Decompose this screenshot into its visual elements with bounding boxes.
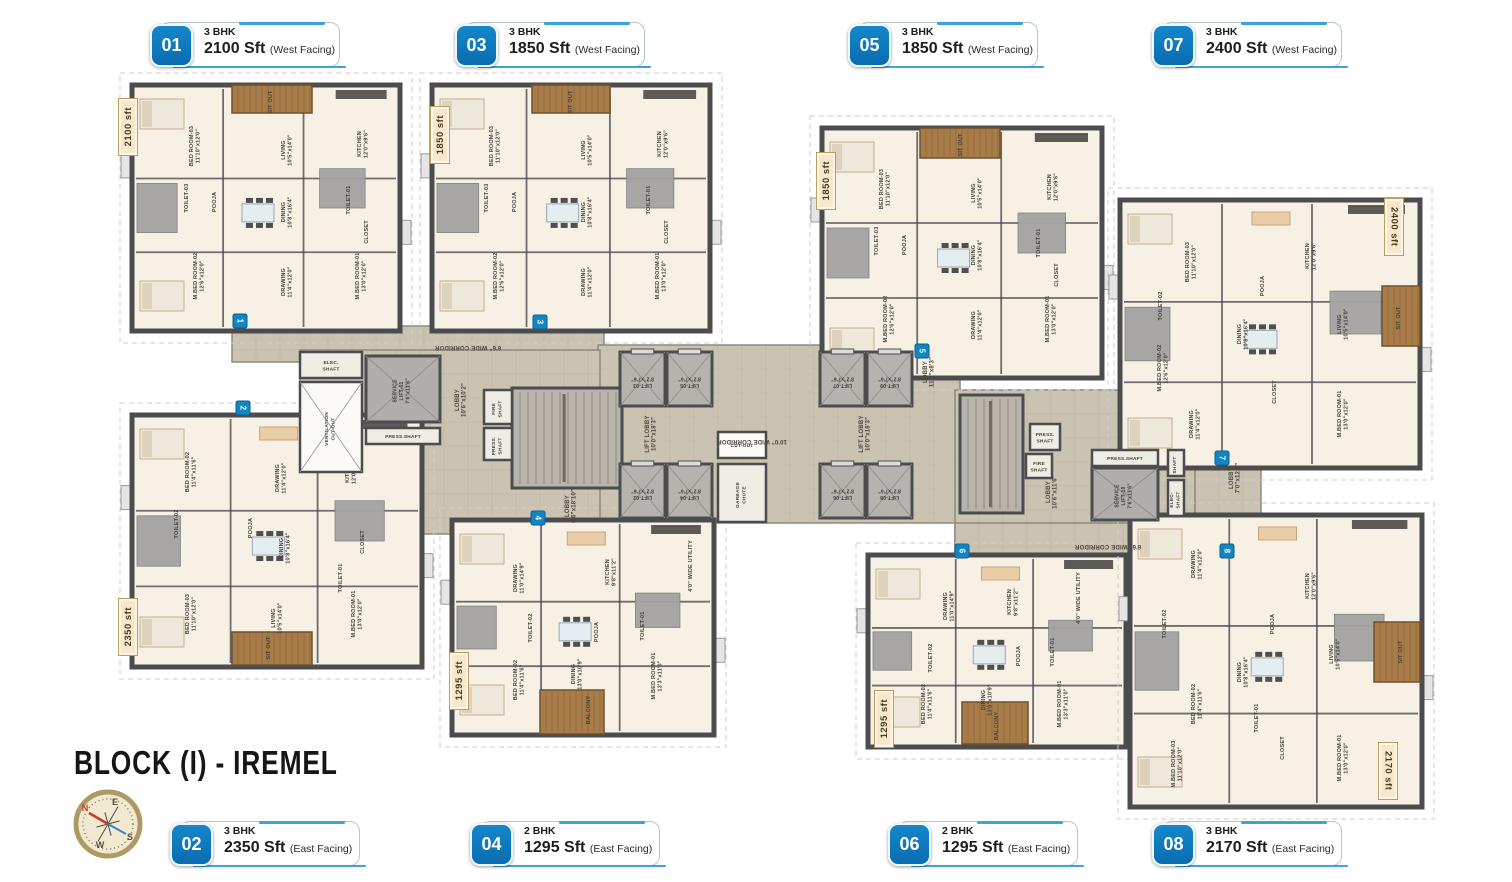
shaft-label: PRESS.SHAFT (385, 434, 421, 440)
bhk-label: 3 BHK (1206, 27, 1337, 39)
room-label: TOILET-02 (928, 644, 934, 673)
area-label: 2170 Sft (East Facing) (1206, 839, 1334, 857)
block-title: BLOCK (I) - IREMEL (74, 744, 338, 782)
service-lift-label: SERVICELIFT-017'6"x11'6" (393, 378, 412, 404)
bhk-label: 2 BHK (524, 826, 652, 838)
room-label: BED ROOM-0311'10"x12'0" (185, 594, 198, 634)
corridor-label: LIFT LOBBY10'0"x18'3" (645, 415, 658, 452)
room-label: TOILET-01 (640, 612, 646, 641)
area-tag: 2170 sft (1378, 742, 1398, 800)
room-label: SIT OUT (568, 90, 574, 114)
unit-number-badge: 02 (170, 823, 213, 866)
facing-label: (West Facing) (968, 44, 1033, 56)
accent-line-bottom (1175, 66, 1348, 69)
accent-line-bottom (478, 66, 651, 69)
lift-lift-04: LIFT-048'2"x7'6" (667, 461, 712, 518)
dining-table (547, 204, 579, 222)
room-label: POOJA (594, 622, 600, 642)
room-label: POOJA (1270, 614, 1276, 634)
room-label: CLOSET (364, 220, 370, 244)
bathroom-tile (873, 632, 912, 670)
marker-number: 6 (957, 549, 966, 554)
unit-01-callout: 013 BHK2100 Sft (West Facing) (150, 21, 340, 67)
unit-number-badge: 06 (888, 823, 931, 866)
bhk-label: 3 BHK (509, 27, 640, 39)
bathroom-tile (457, 606, 496, 649)
unit-03-apartment: SIT OUTBED ROOM-0311'10"x12'0"LIVING10'5… (420, 73, 722, 343)
area-tag: 1850 sft (816, 152, 836, 210)
shaft: FIRESHAFT (1026, 454, 1052, 478)
area-label: 2350 Sft (East Facing) (224, 839, 352, 857)
room-label: TOILET-01 (646, 186, 652, 215)
room-label: TOILET-02 (1158, 292, 1164, 321)
facing-label: (West Facing) (575, 44, 640, 56)
area-label: 1850 Sft (West Facing) (509, 40, 640, 58)
unit-04-callout: 042 BHK1295 Sft (East Facing) (470, 820, 660, 866)
unit-entry-marker-8: 8 (1220, 544, 1234, 558)
shaft-label: PRESS.SHAFT (1107, 456, 1143, 462)
shaft: GARBAGECHUTE (718, 464, 766, 522)
room-label: BED ROOM-0311'10"x12'0" (879, 169, 892, 209)
shaft: PRESS.SHAFT (366, 428, 440, 444)
room-label: TOILET-03 (484, 184, 490, 213)
room-label: BED ROOM-0211'4"x11'6" (185, 452, 198, 492)
room-label: BALCONY (994, 712, 1000, 741)
compass-letter: E (112, 797, 118, 807)
kitchen-counter (1352, 520, 1407, 529)
unit-08-callout: 083 BHK2170 Sft (East Facing) (1152, 820, 1342, 866)
lift-label: LIFT-098'2"x7'6" (878, 376, 901, 389)
sofa (1252, 212, 1290, 225)
facing-label: (East Facing) (290, 843, 352, 855)
shaft: FIRESHAFT (484, 390, 512, 424)
unit-07-callout: 073 BHK2400 Sft (West Facing) (1152, 21, 1342, 67)
shaft: CUT-OUT (718, 432, 766, 458)
shaft: ELEC.SHAFT (300, 352, 362, 378)
accent-line-top (559, 821, 644, 824)
room-label: TOILET-01 (346, 186, 352, 215)
sofa (982, 567, 1020, 580)
room-label: KITCHEN12'0"x9'6" (357, 130, 370, 158)
lift-label: LIFT-068'2"x7'6" (831, 488, 854, 501)
kitchen-counter (1035, 133, 1088, 142)
room-label: POOJA (212, 192, 218, 212)
area-tag: 1295 sft (874, 690, 894, 748)
balcony-deck (540, 690, 604, 734)
bathroom-tile (137, 183, 177, 232)
staircase (960, 395, 1023, 513)
accent-line-top (937, 22, 1022, 25)
shaft: VENTILATIONCUT-OUT (300, 382, 362, 472)
lift-lift-08: LIFT-088'2"x7'6" (867, 461, 912, 518)
lift-label: LIFT-048'2"x7'6" (678, 488, 701, 501)
corridor-label: LIFT LOBBY10'0"x18'3" (859, 415, 872, 452)
facing-label: (East Facing) (1008, 843, 1070, 855)
lift-label: LIFT-078'2"x7'6" (831, 376, 854, 389)
accent-line-top (1241, 821, 1326, 824)
marker-number: 3 (535, 320, 544, 325)
unit-03-callout: 033 BHK1850 Sft (West Facing) (455, 21, 645, 67)
area-label: 1850 Sft (West Facing) (902, 40, 1033, 58)
marker-number: 5 (917, 349, 926, 354)
unit-entry-marker-7: 7 (1215, 451, 1229, 465)
accent-line-top (239, 22, 324, 25)
room-label: TOILET-01 (338, 564, 344, 593)
lift-label: LIFT-028'2"x7'6" (631, 488, 654, 501)
unit-06-apartment: DRAWING11'0"x14'9"KITCHEN9'8"x11'2"4'0" … (856, 543, 1138, 759)
bhk-label: 3 BHK (902, 27, 1033, 39)
shaft: PRESS.SHAFT (1030, 424, 1060, 450)
unit-entry-marker-5: 5 (915, 344, 929, 358)
unit-entry-marker-4: 4 (531, 511, 545, 525)
corridor-label: LOBBY11'2"x8'3" (923, 357, 936, 387)
unit-entry-marker-6: 6 (955, 544, 969, 558)
unit-number-badge: 04 (470, 823, 513, 866)
marker-number: 4 (533, 516, 542, 521)
area-tag: 2400 sft (1384, 198, 1404, 256)
room-label: POOJA (248, 518, 254, 538)
shaft: PRESS.SHAFT (484, 428, 512, 460)
dining-table (242, 204, 274, 222)
room-label: BED ROOM-0311'10"x12'0" (189, 126, 202, 166)
bathroom-tile (827, 228, 869, 278)
unit-number-badge: 08 (1152, 823, 1195, 866)
room-label: DRAWING11'4"x12'0" (971, 309, 984, 340)
accent-line-bottom (871, 66, 1044, 69)
kitchen-counter (1064, 560, 1113, 569)
compass-letter: S (127, 832, 133, 842)
room-label: TOILET-02 (1162, 610, 1168, 639)
facing-label: (West Facing) (270, 44, 335, 56)
dining-table (938, 249, 970, 267)
room-label: DRAWING11'4"x12'0" (1191, 548, 1204, 579)
accent-line-top (1241, 22, 1326, 25)
lift-lift-07: LIFT-078'2"x7'6" (820, 349, 865, 406)
marker-number: 8 (1222, 549, 1231, 554)
unit-02-callout: 023 BHK2350 Sft (East Facing) (170, 820, 360, 866)
compass-letter: N (82, 803, 89, 813)
dining-table (973, 646, 1005, 664)
room-label: CLOSET (1054, 263, 1060, 287)
room-label: TOILET-01 (1050, 638, 1056, 667)
room-label: DRAWING11'0"x14'9" (513, 562, 526, 593)
room-label: POOJA (1016, 646, 1022, 666)
floor-plan-page: { "title": "BLOCK (I) - IREMEL", "compas… (0, 0, 1512, 882)
dining-table (1251, 658, 1283, 676)
room-label: TOILET-01 (1254, 704, 1260, 733)
shaft-label: SHAFT (1172, 457, 1178, 474)
service-lift: SERVICELIFT-017'6"x11'6" (366, 356, 440, 422)
sofa (260, 427, 298, 440)
room-label: KITCHEN12'0"x9'6" (1047, 173, 1060, 201)
unit-number-badge: 01 (150, 24, 193, 67)
facing-label: (East Facing) (1272, 843, 1334, 855)
room-label: 4'0" WIDE UTILITY (688, 540, 694, 592)
room-label: CLOSET (664, 220, 670, 244)
room-label: DRAWING11'4"x12'0" (281, 266, 294, 297)
sofa (1258, 527, 1296, 540)
area-tag: 1850 sft (430, 106, 450, 164)
room-label: BED ROOM-0311'10"x12'0" (1185, 242, 1198, 282)
unit-05-callout: 053 BHK1850 Sft (West Facing) (848, 21, 1038, 67)
unit-06-callout: 062 BHK1295 Sft (East Facing) (888, 820, 1078, 866)
compass-icon: NESW (72, 788, 144, 860)
bhk-label: 3 BHK (204, 27, 335, 39)
accent-line-bottom (173, 66, 346, 69)
lift-lift-03: LIFT-038'2"x7'6" (620, 349, 665, 406)
room-label: TOILET-03 (874, 227, 880, 256)
room-label: TOILET-01 (1036, 229, 1042, 258)
unit-04-apartment: DRAWING11'0"x14'9"KITCHEN9'8"x11'2"4'0" … (440, 508, 726, 747)
marker-number: 7 (1217, 456, 1226, 461)
marker-number: 2 (238, 406, 247, 411)
shaft: ELEC-SHAFT (1168, 480, 1184, 516)
corridor-label: LOBBY7'0"x12'9" (1229, 463, 1242, 494)
area-tag: 2350 sft (118, 598, 138, 656)
room-label: KITCHEN9'8"x11'2" (605, 558, 618, 586)
accent-line-top (977, 821, 1062, 824)
unit-entry-marker-3: 3 (533, 315, 547, 329)
room-label: CLOSET (360, 530, 366, 554)
room-label: DRAWING11'0"x14'9" (943, 590, 956, 621)
accent-line-bottom (1175, 865, 1348, 868)
room-label: SIT OUT (1398, 640, 1404, 664)
room-label: CLOSET (1280, 736, 1286, 760)
room-label: KITCHEN9'8"x11'2" (1007, 588, 1020, 616)
lift-lift-05: LIFT-058'2"x7'6" (667, 349, 712, 406)
kitchen-counter (336, 90, 387, 99)
accent-line-bottom (493, 865, 666, 868)
lift-label: LIFT-058'2"x7'6" (678, 376, 701, 389)
room-label: POOJA (1260, 276, 1266, 296)
unit-number-badge: 05 (848, 24, 891, 67)
marker-number: 1 (235, 319, 244, 324)
kitchen-counter (651, 525, 701, 534)
area-label: 1295 Sft (East Facing) (942, 839, 1070, 857)
service-lift: SERVICELIFT-107'6"x11'6" (1092, 468, 1158, 520)
compass-letter: W (96, 840, 105, 850)
kitchen-counter (643, 90, 696, 99)
lift-label: LIFT-038'2"x7'6" (631, 376, 654, 389)
room-label: DRAWING11'4"x12'0" (581, 266, 594, 297)
room-label: M.BED ROOM-0311'10"x12'0" (1171, 741, 1184, 788)
unit-entry-marker-1: 1 (233, 314, 247, 328)
room-label: CLOSET (1272, 380, 1278, 404)
room-label: SIT OUT (268, 90, 274, 114)
area-label: 2400 Sft (West Facing) (1206, 40, 1337, 58)
room-label: SIT OUT (958, 133, 964, 157)
unit-entry-marker-2: 2 (236, 401, 250, 415)
accent-line-bottom (193, 865, 366, 868)
lift-lift-06: LIFT-068'2"x7'6" (820, 461, 865, 518)
balcony-deck (1374, 622, 1420, 682)
room-label: BED ROOM-0211'4"x11'6" (921, 684, 934, 724)
room-label: BED ROOM-0311'10"x12'0" (489, 126, 502, 166)
bathroom-tile (320, 169, 366, 208)
bathroom-tile (1135, 632, 1179, 690)
unit-05-apartment: SIT OUTBED ROOM-0311'10"x12'0"LIVING10'5… (810, 116, 1114, 390)
room-label: POOJA (902, 235, 908, 255)
accent-line-bottom (911, 865, 1084, 868)
room-label: 4'0" WIDE UTILITY (1076, 572, 1082, 624)
room-label: BED ROOM-0211'4"x11'6" (1191, 684, 1204, 724)
corridor-label: 6'6" WIDE CORRIDOR (1074, 543, 1141, 549)
area-tag: 1295 sft (449, 652, 469, 710)
corridor-label: 6'6" WIDE CORRIDOR (434, 344, 501, 350)
area-label: 1295 Sft (East Facing) (524, 839, 652, 857)
facing-label: (West Facing) (1272, 44, 1337, 56)
room-label: SIT OUT (1396, 306, 1402, 330)
room-label: BALCONY (586, 696, 592, 725)
unit-number-badge: 03 (455, 24, 498, 67)
room-label: TOILET-02 (174, 510, 180, 539)
dining-table (559, 623, 591, 641)
room-label: DRAWING11'4"x12'0" (1189, 408, 1202, 439)
area-label: 2100 Sft (West Facing) (204, 40, 335, 58)
accent-line-top (544, 22, 629, 25)
room-label: KITCHEN12'0"x9'6" (1305, 572, 1318, 600)
room-label: TOILET-02 (528, 614, 534, 643)
unit-01-apartment: SIT OUTBED ROOM-0311'10"x12'0"LIVING10'5… (120, 73, 412, 343)
bhk-label: 3 BHK (224, 826, 352, 838)
corridor-label: 10'0" WIDE CORRIDOR (717, 438, 787, 444)
staircase (512, 388, 622, 488)
bathroom-tile (437, 183, 479, 232)
unit-number-badge: 07 (1152, 24, 1195, 67)
room-label: POOJA (512, 192, 518, 212)
room-label: SIT OUT (266, 636, 272, 660)
shaft: SHAFT (1168, 450, 1184, 476)
lift-lift-02: LIFT-028'2"x7'6" (620, 461, 665, 518)
shaft: PRESS.SHAFT (1092, 450, 1158, 466)
area-tag: 2100 sft (118, 98, 138, 156)
room-label: DRAWING11'4"x12'0" (275, 462, 288, 493)
bhk-label: 2 BHK (942, 826, 1070, 838)
room-label: TOILET-03 (184, 184, 190, 213)
lift-label: LIFT-088'2"x7'6" (878, 488, 901, 501)
sofa (567, 532, 605, 545)
service-lift-label: SERVICELIFT-107'6"x11'6" (1115, 483, 1134, 509)
facing-label: (East Facing) (590, 843, 652, 855)
room-label: BED ROOM-0211'4"x11'6" (513, 660, 526, 700)
dining-table (1245, 330, 1277, 348)
room-label: KITCHEN12'0"x9'6" (1305, 242, 1318, 270)
room-label: KITCHEN12'0"x9'6" (657, 130, 670, 158)
accent-line-top (259, 821, 344, 824)
bhk-label: 3 BHK (1206, 826, 1334, 838)
lift-lift-09: LIFT-098'2"x7'6" (867, 349, 912, 406)
